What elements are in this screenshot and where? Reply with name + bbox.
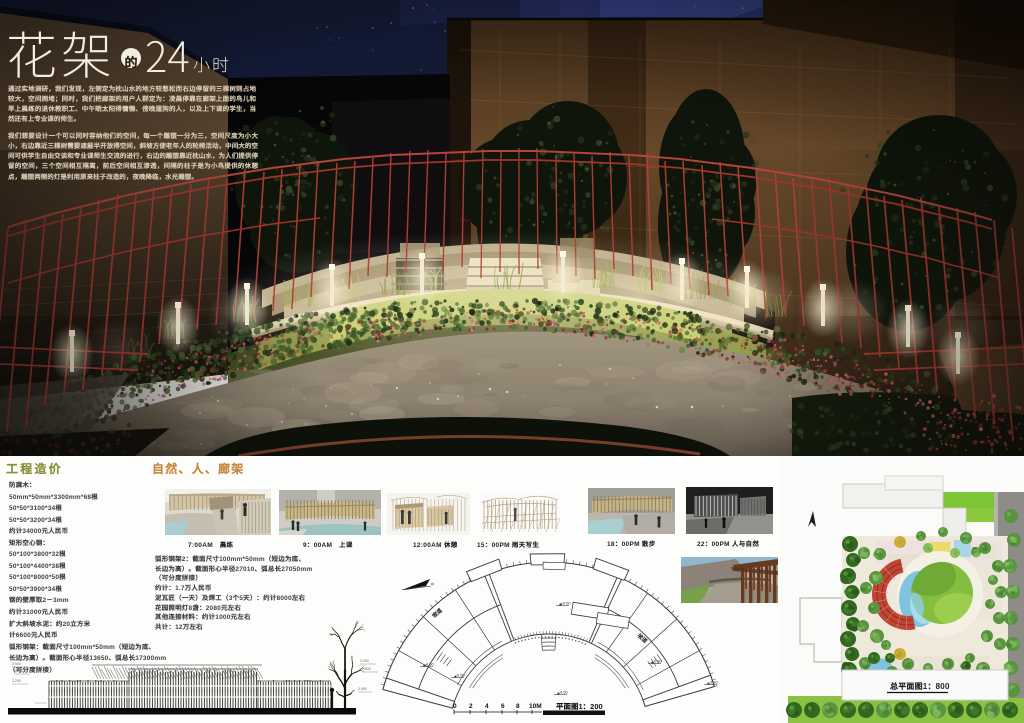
svg-text:-3.30: -3.30 [709,680,719,685]
svg-text:坡道: 坡道 [431,607,444,620]
svg-text:平面图1：200: 平面图1：200 [556,702,603,711]
svg-text:-0.50: -0.50 [456,673,466,678]
svg-text:2.600: 2.600 [362,667,371,671]
svg-text:3.900: 3.900 [12,662,21,666]
svg-text:坡道: 坡道 [636,632,649,645]
svg-text:3.300: 3.300 [360,659,369,663]
svg-text:3.300: 3.300 [14,669,23,673]
svg-text:±0.00: ±0.00 [561,601,572,606]
svg-text:0: 0 [453,703,457,710]
svg-text:2.200: 2.200 [12,679,21,683]
svg-text:-0.80: -0.80 [653,659,663,664]
svg-text:总平面图1：800: 总平面图1：800 [890,682,950,691]
svg-text:-4.50: -4.50 [559,690,569,695]
svg-text:4.300: 4.300 [12,655,21,659]
svg-text:4: 4 [485,703,489,710]
svg-text:2: 2 [469,703,473,710]
svg-text:6: 6 [501,703,505,710]
svg-text:0.450: 0.450 [358,687,367,691]
svg-text:10M: 10M [529,703,542,710]
svg-text:-4.50: -4.50 [425,662,435,667]
svg-text:8: 8 [516,703,520,710]
